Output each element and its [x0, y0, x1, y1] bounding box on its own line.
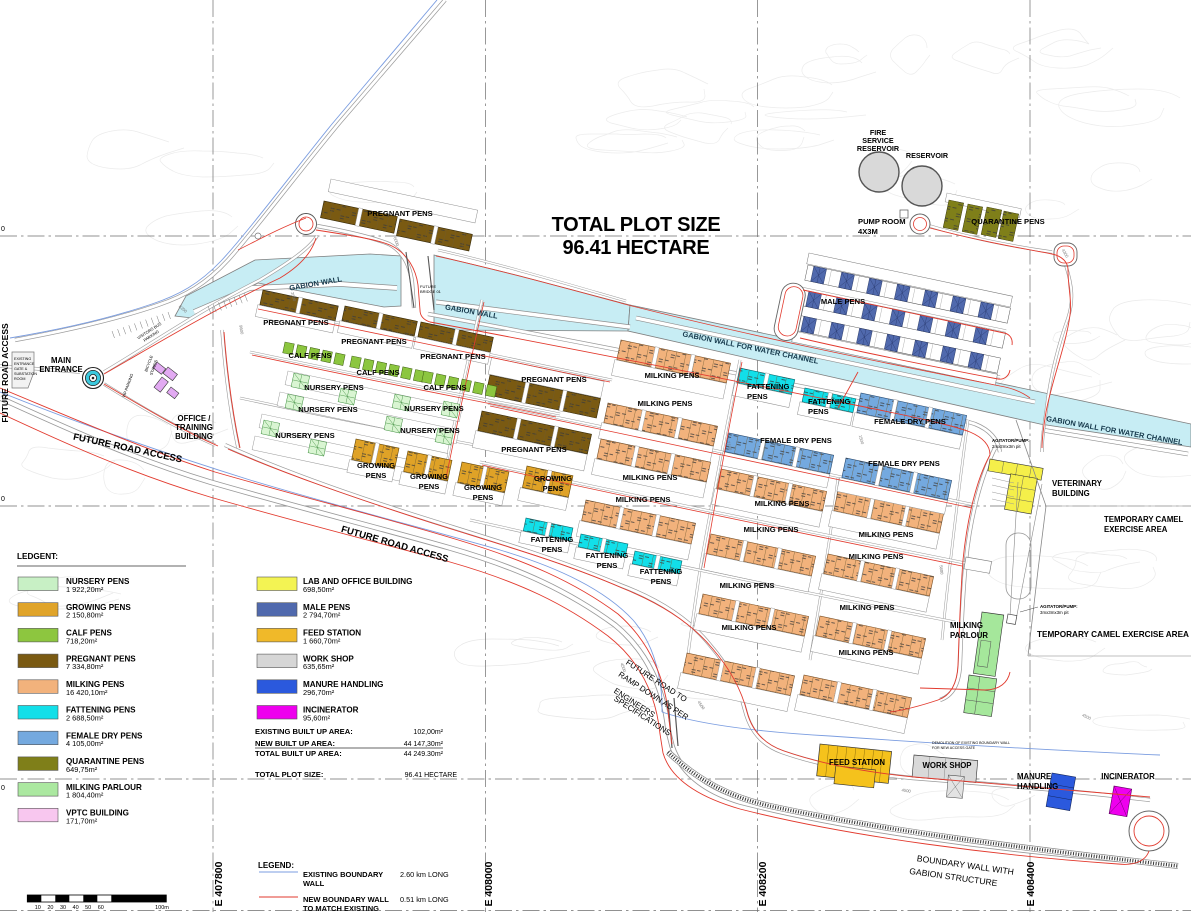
svg-text:1 804,40m²: 1 804,40m² [66, 791, 104, 800]
svg-text:0: 0 [1, 785, 5, 792]
svg-text:PENS: PENS [651, 577, 672, 586]
svg-text:TEMPORARY CAMEL: TEMPORARY CAMEL [1104, 515, 1184, 524]
svg-text:WORK SHOP: WORK SHOP [923, 761, 972, 770]
svg-text:698,50m²: 698,50m² [303, 585, 335, 594]
svg-text:60: 60 [98, 905, 104, 911]
svg-text:PUMP ROOM: PUMP ROOM [858, 217, 906, 226]
svg-text:HANDLING: HANDLING [1017, 782, 1058, 791]
svg-text:0: 0 [1, 226, 5, 233]
svg-text:ENTRANCE: ENTRANCE [14, 362, 35, 366]
svg-text:OFFICE /: OFFICE / [178, 414, 212, 423]
svg-text:ROOM: ROOM [14, 377, 25, 381]
svg-text:E 408200: E 408200 [757, 861, 769, 906]
svg-text:PREGNANT PENS: PREGNANT PENS [341, 337, 406, 346]
svg-text:EXISTING: EXISTING [14, 357, 31, 361]
svg-text:FATTENING: FATTENING [640, 567, 683, 576]
svg-text:102,00m²: 102,00m² [413, 729, 443, 736]
svg-text:MILKING PENS: MILKING PENS [720, 581, 775, 590]
svg-text:0: 0 [1, 496, 5, 503]
svg-text:NURSERY PENS: NURSERY PENS [404, 404, 464, 413]
svg-text:MILKING PENS: MILKING PENS [744, 525, 799, 534]
svg-text:100m: 100m [155, 905, 169, 911]
svg-text:10: 10 [35, 905, 41, 911]
svg-text:NURSERY PENS: NURSERY PENS [400, 426, 460, 435]
svg-text:PENS: PENS [543, 484, 564, 493]
svg-text:ENTRANCE: ENTRANCE [39, 365, 82, 374]
svg-text:EXERCISE AREA: EXERCISE AREA [1104, 525, 1168, 534]
svg-text:BUILDING: BUILDING [1052, 489, 1090, 498]
svg-text:TOTAL BUILT UP AREA:: TOTAL BUILT UP AREA: [255, 749, 342, 758]
svg-text:MILKING: MILKING [950, 621, 983, 630]
svg-text:FEMALE DRY PENS: FEMALE DRY PENS [868, 459, 940, 468]
svg-text:NURSERY PENS: NURSERY PENS [304, 383, 364, 392]
svg-text:MILKING PENS: MILKING PENS [616, 495, 671, 504]
svg-text:GATE &: GATE & [14, 367, 28, 371]
svg-text:FATTENING: FATTENING [808, 397, 851, 406]
svg-text:BUILDING: BUILDING [175, 432, 213, 441]
svg-text:TOTAL PLOT SIZE: TOTAL PLOT SIZE [552, 214, 721, 236]
svg-text:QUARANTINE PENS: QUARANTINE PENS [971, 217, 1044, 226]
svg-text:PREGNANT PENS: PREGNANT PENS [521, 375, 586, 384]
svg-text:MILKING PENS: MILKING PENS [839, 648, 894, 657]
svg-text:EXISTING BOUNDARY: EXISTING BOUNDARY [303, 870, 383, 879]
svg-text:649,75m²: 649,75m² [66, 765, 98, 774]
svg-text:FEMALE DRY PENS: FEMALE DRY PENS [874, 417, 946, 426]
svg-text:NURSERY PENS: NURSERY PENS [275, 431, 335, 440]
svg-text:NEW BUILT UP AREA:: NEW BUILT UP AREA: [255, 739, 335, 748]
svg-text:1 922,20m²: 1 922,20m² [66, 585, 104, 594]
svg-text:PENS: PENS [542, 545, 563, 554]
svg-text:FATTENING: FATTENING [747, 382, 790, 391]
svg-text:E 407800: E 407800 [213, 861, 225, 906]
svg-text:SUBSTATION: SUBSTATION [14, 372, 37, 376]
svg-text:20: 20 [47, 905, 53, 911]
svg-text:2.60 km LONG: 2.60 km LONG [400, 870, 449, 879]
svg-text:96.41 HECTARE: 96.41 HECTARE [405, 772, 458, 779]
svg-text:PREGNANT PENS: PREGNANT PENS [420, 352, 485, 361]
svg-text:WALL: WALL [303, 879, 325, 888]
svg-text:TOTAL PLOT SIZE:: TOTAL PLOT SIZE: [255, 770, 323, 779]
svg-text:CALF PENS: CALF PENS [288, 351, 331, 360]
svg-text:44 249.30m²: 44 249.30m² [404, 751, 444, 758]
svg-text:MANURE: MANURE [1017, 772, 1051, 781]
svg-text:E 408000: E 408000 [483, 861, 495, 906]
svg-text:TRAINING: TRAINING [175, 423, 213, 432]
svg-text:TO MATCH EXISTING: TO MATCH EXISTING [303, 904, 379, 913]
svg-text:95,60m²: 95,60m² [303, 714, 331, 723]
svg-text:PENS: PENS [597, 561, 618, 570]
svg-text:718,20m²: 718,20m² [66, 636, 98, 645]
svg-text:PENS: PENS [808, 407, 829, 416]
svg-text:PENS: PENS [473, 493, 494, 502]
svg-text:40: 40 [73, 905, 79, 911]
svg-text:PENS: PENS [366, 471, 387, 480]
svg-text:PARLOUR: PARLOUR [950, 631, 988, 640]
svg-text:1 660,70m²: 1 660,70m² [303, 636, 341, 645]
svg-text:16 420,10m²: 16 420,10m² [66, 688, 108, 697]
svg-text:5800: 5800 [939, 565, 945, 575]
svg-text:MILKING PENS: MILKING PENS [638, 399, 693, 408]
svg-text:PENS: PENS [747, 392, 768, 401]
svg-text:4 105,00m²: 4 105,00m² [66, 739, 104, 748]
svg-text:FATTENING: FATTENING [586, 551, 629, 560]
svg-text:AGITATOR/PUMP:: AGITATOR/PUMP: [1040, 604, 1078, 609]
svg-text:MILKING PENS: MILKING PENS [623, 473, 678, 482]
svg-text:FATTENING: FATTENING [531, 535, 574, 544]
svg-text:50: 50 [85, 905, 91, 911]
svg-text:MILKING PENS: MILKING PENS [722, 623, 777, 632]
svg-text:3mx3mx3m pit: 3mx3mx3m pit [1040, 610, 1069, 615]
svg-text:LEGEND:: LEGEND: [258, 861, 294, 870]
svg-text:LEDGENT:: LEDGENT: [17, 552, 58, 561]
svg-text:7 334,80m²: 7 334,80m² [66, 662, 104, 671]
svg-text:MAIN: MAIN [51, 356, 71, 365]
svg-text:DEMOLITION OF EXISTING BOUNDAR: DEMOLITION OF EXISTING BOUNDARY WALL [932, 741, 1010, 745]
svg-text:2 150,80m²: 2 150,80m² [66, 611, 104, 620]
svg-text:RESERVOIR: RESERVOIR [857, 144, 900, 153]
svg-text:FEED STATION: FEED STATION [829, 758, 885, 767]
svg-text:2 688,50m²: 2 688,50m² [66, 714, 104, 723]
svg-text:FEMALE DRY PENS: FEMALE DRY PENS [760, 436, 832, 445]
svg-text:GROWING: GROWING [534, 474, 572, 483]
svg-text:TEMPORARY CAMEL EXERCISE AREA: TEMPORARY CAMEL EXERCISE AREA [1037, 630, 1189, 639]
svg-text:MILKING PENS: MILKING PENS [840, 603, 895, 612]
svg-text:INCINERATOR: INCINERATOR [1101, 772, 1155, 781]
svg-text:PREGNANT PENS: PREGNANT PENS [501, 445, 566, 454]
svg-text:2 794,70m²: 2 794,70m² [303, 611, 341, 620]
svg-text:0.51 km LONG: 0.51 km LONG [400, 895, 449, 904]
svg-text:GROWING: GROWING [464, 483, 502, 492]
svg-text:AGITATOR/PUMP:: AGITATOR/PUMP: [992, 438, 1030, 443]
svg-text:CALF PENS: CALF PENS [423, 383, 466, 392]
svg-text:44 147,30m²: 44 147,30m² [404, 741, 444, 748]
svg-text:4X3M: 4X3M [858, 227, 878, 236]
svg-text:MILKING PENS: MILKING PENS [645, 371, 700, 380]
svg-text:NEW BOUNDARY WALL: NEW BOUNDARY WALL [303, 895, 389, 904]
svg-text:FOR NEW ACCESS GATE: FOR NEW ACCESS GATE [932, 746, 976, 750]
svg-text:MILKING PENS: MILKING PENS [859, 530, 914, 539]
svg-text:FUTURE ROAD ACCESS: FUTURE ROAD ACCESS [0, 323, 10, 423]
svg-text:GROWING: GROWING [410, 472, 448, 481]
svg-text:NURSERY PENS: NURSERY PENS [298, 405, 358, 414]
svg-text:E 408400: E 408400 [1025, 861, 1037, 906]
svg-text:CALF PENS: CALF PENS [356, 368, 399, 377]
svg-text:GROWING: GROWING [357, 461, 395, 470]
svg-text:RESERVOIR: RESERVOIR [906, 151, 949, 160]
svg-text:635,65m²: 635,65m² [303, 662, 335, 671]
svg-text:2mx2mx3m pit: 2mx2mx3m pit [992, 444, 1021, 449]
svg-text:30: 30 [60, 905, 66, 911]
svg-text:MILKING PENS: MILKING PENS [755, 499, 810, 508]
svg-text:MILKING PENS: MILKING PENS [849, 552, 904, 561]
svg-text:296,70m²: 296,70m² [303, 688, 335, 697]
svg-text:PREGNANT PENS: PREGNANT PENS [367, 209, 432, 218]
svg-text:PREGNANT PENS: PREGNANT PENS [263, 318, 328, 327]
svg-text:VETERINARY: VETERINARY [1052, 479, 1103, 488]
svg-text:96.41 HECTARE: 96.41 HECTARE [563, 237, 710, 259]
svg-text:EXISTING BUILT UP AREA:: EXISTING BUILT UP AREA: [255, 727, 353, 736]
svg-text:BRIDGE 01: BRIDGE 01 [420, 289, 442, 294]
svg-text:PENS: PENS [419, 482, 440, 491]
svg-text:MALE PENS: MALE PENS [821, 297, 865, 306]
svg-text:171,70m²: 171,70m² [66, 816, 98, 825]
